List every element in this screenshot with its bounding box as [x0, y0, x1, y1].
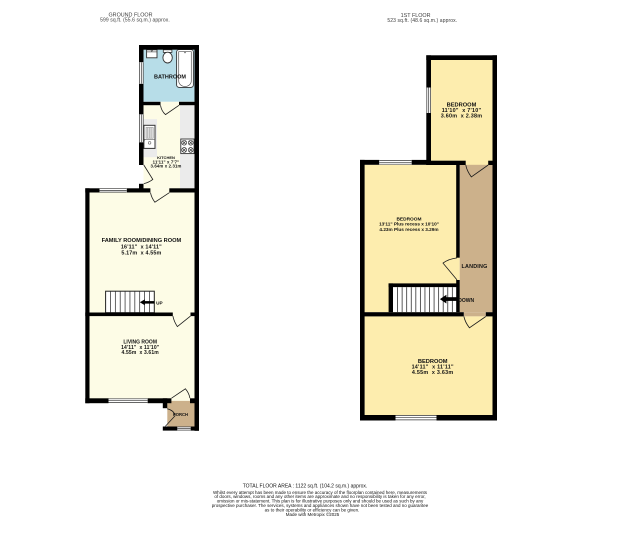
svg-text:4.23m Plus recess x 3.29m: 4.23m Plus recess x 3.29m: [379, 227, 438, 232]
svg-text:3.60m x 2.38m: 3.60m x 2.38m: [441, 113, 483, 119]
svg-text:PORCH: PORCH: [173, 412, 188, 417]
svg-text:3.64m x 2.31m: 3.64m x 2.31m: [150, 164, 181, 169]
svg-text:BATHROOM: BATHROOM: [154, 74, 186, 80]
svg-text:FAMILY ROOM/DINING ROOM: FAMILY ROOM/DINING ROOM: [102, 238, 182, 244]
svg-text:Made with Metropix ©2025: Made with Metropix ©2025: [286, 511, 340, 517]
svg-text:4.55m x 3.63m: 4.55m x 3.63m: [412, 370, 454, 376]
svg-text:LANDING: LANDING: [462, 264, 488, 270]
svg-text:523 sq.ft. (48.6 sq.m.) approx: 523 sq.ft. (48.6 sq.m.) approx.: [387, 18, 457, 24]
svg-text:UP: UP: [156, 301, 163, 306]
svg-text:5.17m x 4.55m: 5.17m x 4.55m: [121, 250, 161, 256]
svg-text:16'11" x 14'11": 16'11" x 14'11": [121, 244, 162, 250]
svg-text:4.55m x 3.61m: 4.55m x 3.61m: [121, 350, 159, 356]
svg-text:599 sq.ft. (55.6 sq.m.) approx: 599 sq.ft. (55.6 sq.m.) approx.: [100, 18, 170, 24]
svg-text:DOWN: DOWN: [458, 298, 474, 304]
svg-text:TOTAL FLOOR AREA : 1122 sq.ft.: TOTAL FLOOR AREA : 1122 sq.ft. (104.2 sq…: [243, 484, 368, 490]
